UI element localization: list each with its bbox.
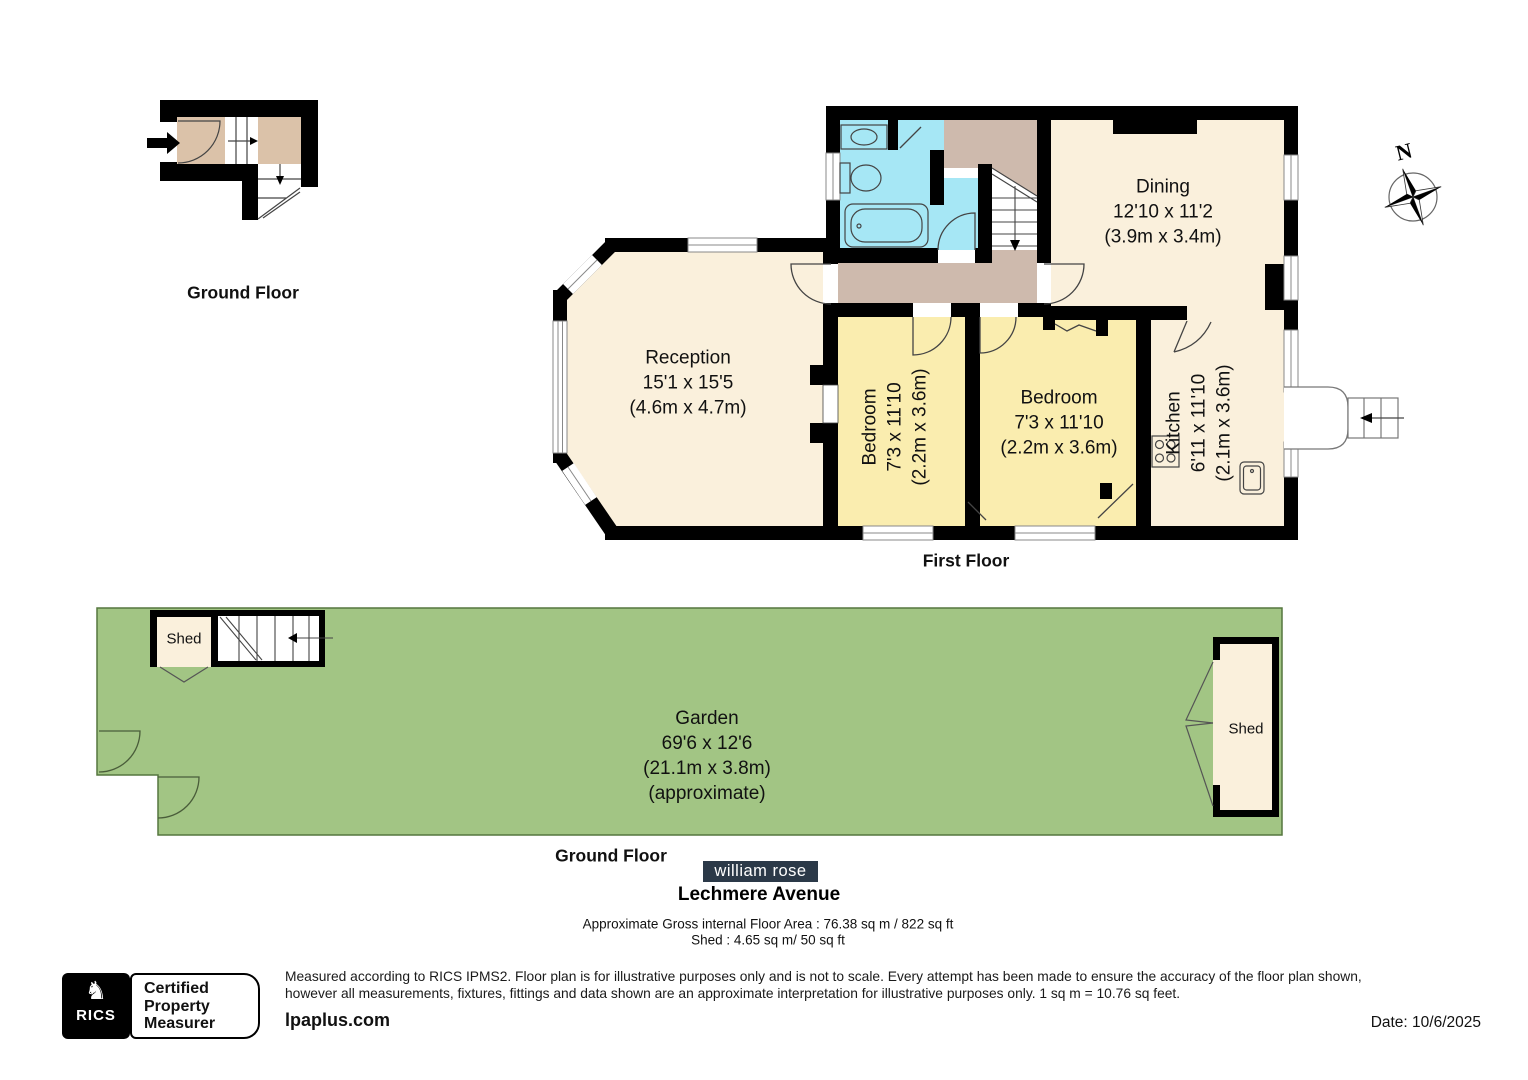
rics-wordmark: RICS [62, 1009, 130, 1023]
external-steps [1284, 387, 1404, 449]
room-label-reception: Reception 15'1 x 15'5 (4.6m x 4.7m) [629, 346, 746, 421]
rics-logo: ♞ RICS [62, 973, 130, 1039]
property-address: Lechmere Avenue [678, 884, 840, 906]
disclaimer-line-1: Measured according to RICS IPMS2. Floor … [285, 969, 1362, 986]
shed-label-left: Shed [166, 631, 201, 648]
compass-icon [1385, 169, 1441, 225]
garden-floor-label: Ground Floor [555, 844, 667, 869]
brand-logo: william rose [703, 861, 818, 882]
shed-label-right: Shed [1228, 721, 1263, 738]
ground-floor-label: Ground Floor [187, 281, 299, 306]
room-label-dining: Dining 12'10 x 11'2 (3.9m x 3.4m) [1104, 175, 1221, 250]
rics-lion-icon: ♞ [62, 973, 130, 1009]
room-label-bedroom-middle: Bedroom 7'3 x 11'10 (2.2m x 3.6m) [1000, 386, 1117, 461]
first-floor-label: First Floor [923, 549, 1010, 574]
room-label-garden: Garden 69'6 x 12'6 (21.1m x 3.8m) (appro… [643, 706, 771, 806]
ground-floor-plan [147, 100, 318, 220]
room-label-kitchen: Kitchen 6'11 x 11'10 (2.1m x 3.6m) [1162, 364, 1237, 481]
floorplan-page: Dining 12'10 x 11'2 (3.9m x 3.4m) Recept… [0, 0, 1528, 1080]
fireplace-recess [823, 385, 838, 423]
date-label: Date: 10/6/2025 [1371, 1014, 1481, 1032]
first-floor-plan [553, 106, 1404, 540]
room-label-bedroom-left: Bedroom 7'3 x 11'10 (2.2m x 3.6m) [858, 368, 933, 485]
disclaimer-line-2: however all measurements, fixtures, fitt… [285, 986, 1180, 1003]
floor-area-text: Approximate Gross internal Floor Area : … [583, 917, 954, 932]
shed-area-text: Shed : 4.65 sq m/ 50 sq ft [691, 933, 845, 948]
website-link[interactable]: lpaplus.com [285, 1010, 390, 1031]
garden-stairs [218, 616, 333, 661]
certified-property-measurer-badge: Certified Property Measurer [130, 973, 260, 1039]
